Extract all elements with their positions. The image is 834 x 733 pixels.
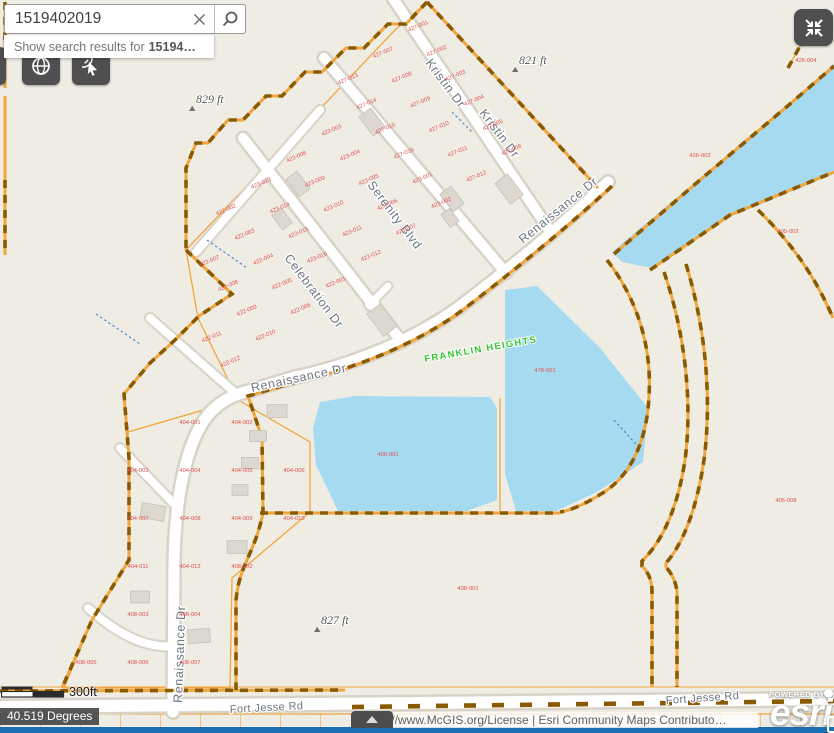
scale-bar-graphic (1, 686, 67, 698)
suggestion-term: 15194… (149, 40, 196, 54)
esri-logo: esri (770, 692, 832, 733)
info-corner-icon[interactable] (827, 716, 834, 733)
svg-text:408-003: 408-003 (127, 612, 148, 618)
cursor-click-icon (80, 55, 102, 77)
svg-text:404-003: 404-003 (127, 468, 148, 474)
svg-text:404-001: 404-001 (179, 420, 200, 426)
map-viewer: Kristin Dr Kristin Dr Serenity Blvd Cele… (0, 0, 834, 733)
map-background (0, 0, 834, 733)
svg-text:404-005: 404-005 (231, 468, 252, 474)
svg-text:408-005: 408-005 (75, 660, 96, 666)
svg-text:404-010: 404-010 (283, 516, 304, 522)
map-canvas[interactable]: Kristin Dr Kristin Dr Serenity Blvd Cele… (0, 0, 834, 733)
svg-text:404-002: 404-002 (231, 420, 252, 426)
scale-bar: 300ft (1, 686, 97, 698)
search-box (4, 4, 246, 34)
svg-text:404-004: 404-004 (179, 468, 201, 474)
svg-text:405-002: 405-002 (777, 229, 798, 235)
search-suggestion[interactable]: Show search results for 15194… (4, 35, 214, 58)
svg-text:408-004: 408-004 (179, 612, 201, 618)
svg-text:426-004: 426-004 (795, 58, 817, 64)
svg-text:404-012: 404-012 (179, 564, 200, 570)
svg-text:404-011: 404-011 (128, 564, 149, 570)
scale-bar-label: 300ft (69, 686, 97, 698)
attribution-expand-tab[interactable] (351, 711, 393, 728)
svg-text:426-002: 426-002 (689, 153, 710, 159)
svg-text:408-007: 408-007 (179, 660, 200, 666)
svg-text:404-008: 404-008 (179, 516, 200, 522)
svg-text:406-001: 406-001 (377, 452, 398, 458)
svg-text:821 ft: 821 ft (519, 53, 547, 67)
pond-center-left (313, 396, 497, 511)
search-icon (221, 10, 239, 28)
svg-text:404-007: 404-007 (127, 516, 148, 522)
chevron-up-icon (366, 716, 378, 723)
svg-text:478-001: 478-001 (534, 368, 555, 374)
search-input[interactable] (5, 10, 184, 28)
collapse-panels-button[interactable] (794, 9, 833, 46)
clear-search-button[interactable] (184, 5, 214, 33)
globe-icon (30, 55, 52, 77)
svg-text:405-008: 405-008 (775, 498, 796, 504)
svg-text:408-006: 408-006 (127, 660, 148, 666)
svg-text:404-006: 404-006 (283, 468, 304, 474)
attribution-bar: http://www.McGIS.org/License | Esri Comm… (362, 712, 758, 728)
svg-text:829 ft: 829 ft (196, 92, 224, 106)
heading-degrees-badge: 40.519 Degrees (0, 708, 99, 725)
svg-text:408-002: 408-002 (231, 564, 252, 570)
search-submit-button[interactable] (215, 5, 245, 33)
suggestion-prefix: Show search results for (14, 40, 145, 54)
svg-text:408-001: 408-001 (457, 586, 478, 592)
svg-text:827 ft: 827 ft (321, 613, 349, 627)
close-icon (192, 12, 207, 27)
svg-text:404-009: 404-009 (231, 516, 252, 522)
collapse-arrows-icon (803, 17, 825, 39)
